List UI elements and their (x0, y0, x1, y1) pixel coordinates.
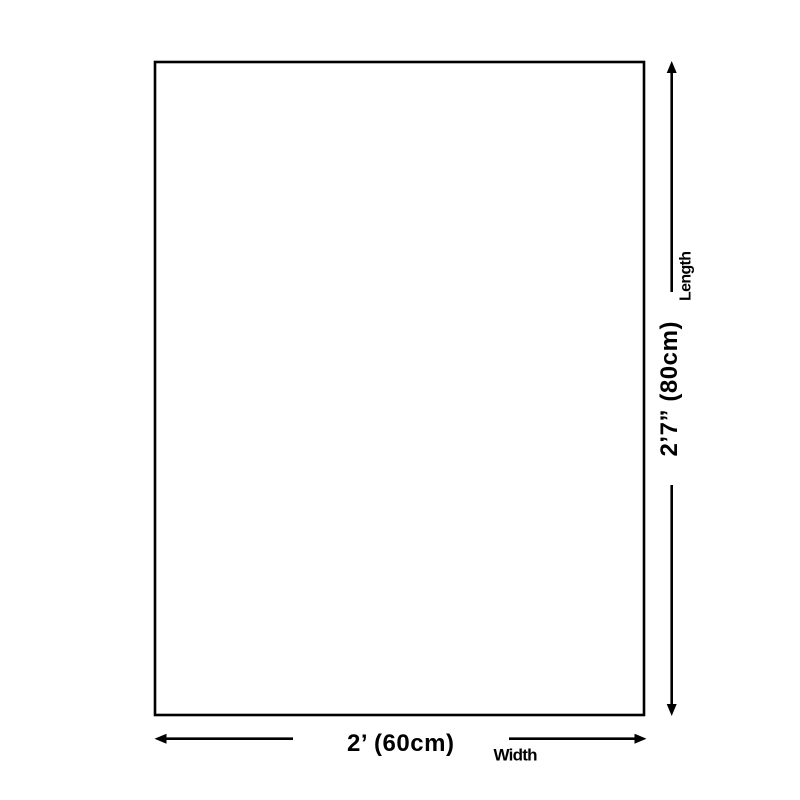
svg-text:2’ (60cm): 2’ (60cm) (347, 730, 454, 757)
svg-text:2’7” (80cm): 2’7” (80cm) (656, 322, 683, 457)
svg-text:Width: Width (494, 746, 538, 765)
svg-text:Length: Length (678, 251, 695, 301)
